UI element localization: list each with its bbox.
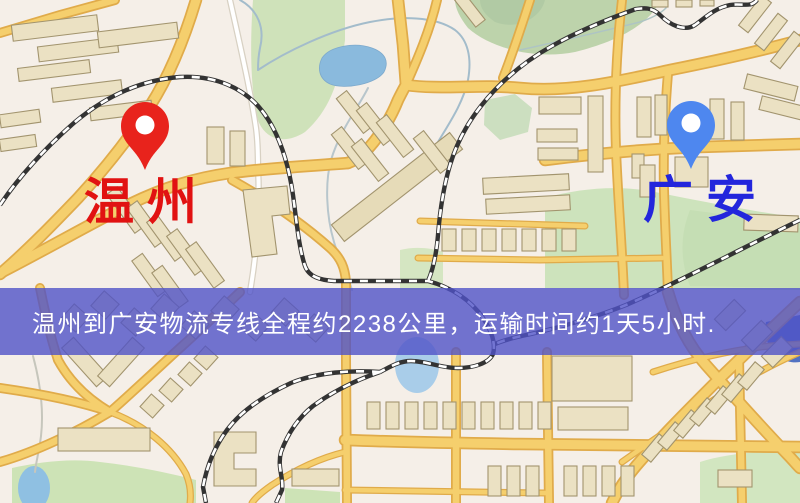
route-info-text: 温州到广安物流专线全程约2238公里，运输时间约1天5小时.	[32, 304, 716, 339]
destination-city-label: 广安	[643, 175, 769, 225]
route-info-banner: 温州到广安物流专线全程约2238公里，运输时间约1天5小时.	[0, 288, 800, 355]
map-screenshot: 温州 广安 温州到广安物流专线全程约2238公里，运输时间约1天5小时.	[0, 0, 800, 503]
origin-city-label: 温州	[84, 177, 210, 227]
origin-pin-hole	[136, 116, 155, 135]
destination-pin-hole	[682, 114, 701, 133]
map-canvas[interactable]	[0, 0, 800, 503]
